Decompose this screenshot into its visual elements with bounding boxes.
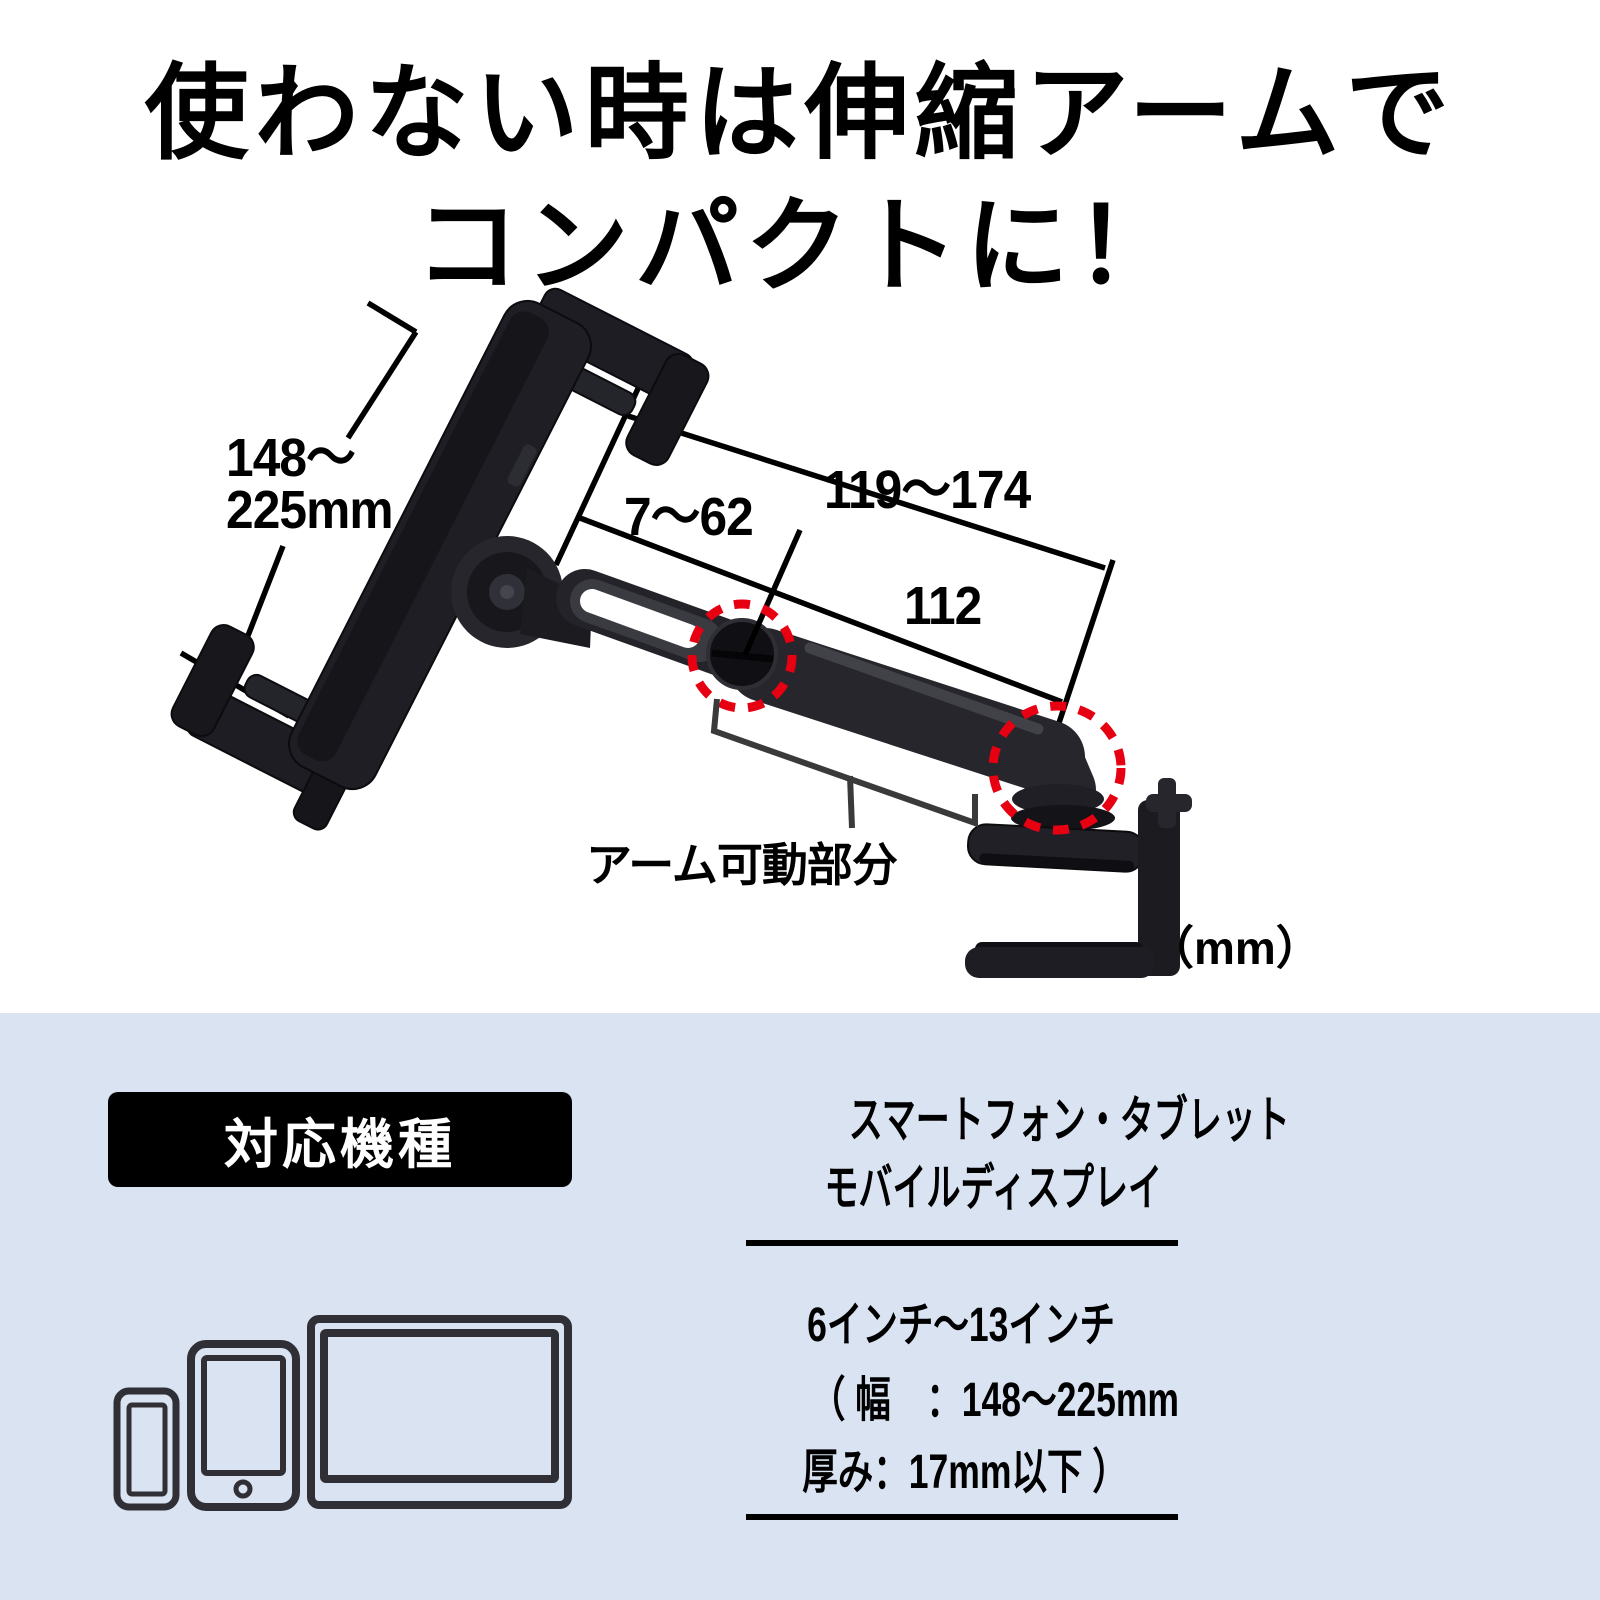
elbow-highlight-circle	[993, 706, 1121, 830]
dimension-arm-length-label: 112	[904, 579, 981, 633]
arm-movable-bracket	[714, 699, 975, 828]
dimension-extend-label: 119～174	[824, 463, 1030, 517]
knob-highlight-circle	[692, 604, 792, 708]
product-diagram-page: 対応機種 スマートフォン・タブレット モバイルディスプレイ 6インチ～13インチ…	[0, 0, 1600, 1600]
device-types-line1: スマートフォン・タブレット	[745, 1080, 1177, 1152]
page-title-line1: 使わない時は伸縮アームで	[0, 62, 1600, 166]
spec-thickness-text: 厚み：17mm以下 ）	[745, 1432, 1177, 1502]
unit-label: （mm）	[1148, 912, 1322, 978]
movable-joint-highlights	[692, 604, 1121, 830]
arm-movable-label: アーム可動部分	[586, 829, 897, 895]
dimension-width-label: 148～ 225mm	[226, 432, 393, 536]
dimension-width-line2: 225mm	[226, 484, 393, 536]
knob-leader-line	[745, 530, 800, 655]
page-title-line2: コンパクトに！	[0, 195, 1600, 299]
divider-top	[746, 1240, 1178, 1246]
compat-section: 対応機種 スマートフォン・タブレット モバイルディスプレイ 6インチ～13インチ…	[0, 1013, 1600, 1600]
compat-badge-label: 対応機種	[224, 1100, 456, 1179]
size-range-text: 6インチ～13インチ	[745, 1285, 1177, 1355]
spec-width-text: （ 幅 ：148～225mm	[745, 1360, 1177, 1430]
dimension-slide-label: 7～62	[624, 490, 753, 544]
compat-badge: 対応機種	[108, 1092, 572, 1187]
device-types-line2: モバイルディスプレイ	[745, 1148, 1177, 1220]
dimension-width-line1: 148～	[226, 432, 393, 484]
divider-bottom	[746, 1514, 1178, 1520]
